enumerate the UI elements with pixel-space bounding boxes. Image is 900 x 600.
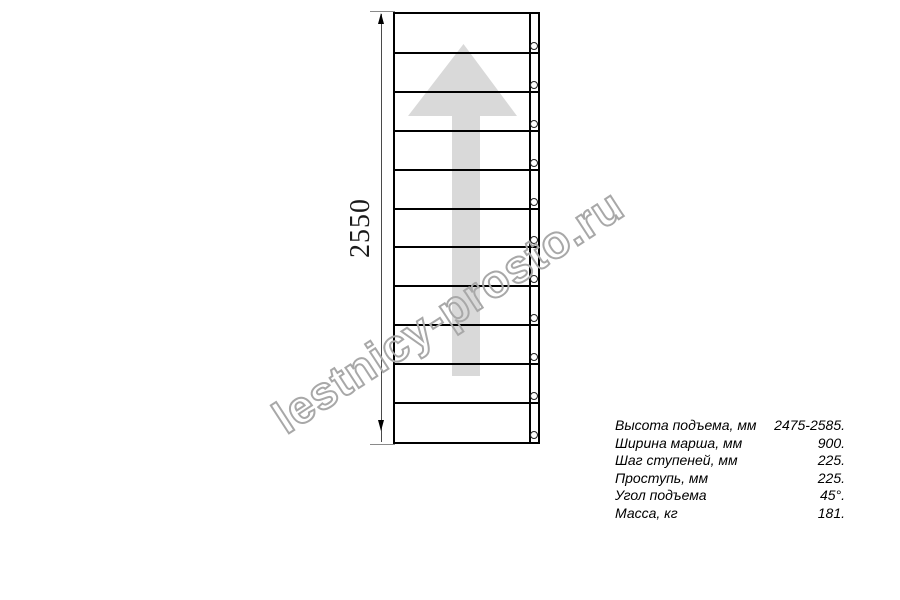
dimension-arrowhead-up-icon: [378, 13, 384, 24]
step-line: [395, 52, 538, 54]
stringer-line: [529, 14, 531, 442]
bolt-icon: [530, 42, 538, 50]
spec-value: 225.: [818, 452, 845, 470]
up-direction-arrow-icon: [395, 14, 538, 442]
dimension-label: 2550: [345, 198, 377, 258]
step-line: [395, 402, 538, 404]
spec-label: Проступь, мм: [615, 470, 708, 488]
spec-label: Высота подъема, мм: [615, 417, 757, 435]
bolt-icon: [530, 314, 538, 322]
dimension-arrowhead-down-icon: [378, 420, 384, 431]
bolt-icon: [530, 120, 538, 128]
spec-row: Проступь, мм225.: [615, 470, 845, 488]
spec-row: Высота подъема, мм2475-2585.: [615, 417, 845, 435]
dimension-extension-line-top: [370, 11, 395, 12]
spec-row: Ширина марша, мм900.: [615, 435, 845, 453]
spec-value: 225.: [818, 470, 845, 488]
step-line: [395, 363, 538, 365]
step-line: [395, 285, 538, 287]
bolt-icon: [530, 275, 538, 283]
bolt-icon: [530, 236, 538, 244]
bolt-icon: [530, 198, 538, 206]
spec-value: 45°.: [820, 487, 845, 505]
bolt-icon: [530, 81, 538, 89]
bolt-icon: [530, 392, 538, 400]
dimension-extension-line-bottom: [370, 444, 395, 445]
spec-label: Ширина марша, мм: [615, 435, 742, 453]
bolt-icon: [530, 431, 538, 439]
staircase-plan: [393, 12, 540, 444]
spec-value: 181.: [818, 505, 845, 523]
spec-value: 900.: [818, 435, 845, 453]
spec-label: Масса, кг: [615, 505, 678, 523]
dimension-line: [381, 14, 382, 442]
spec-table: Высота подъема, мм2475-2585.Ширина марша…: [615, 417, 845, 522]
step-line: [395, 208, 538, 210]
step-line: [395, 130, 538, 132]
spec-row: Масса, кг181.: [615, 505, 845, 523]
technical-drawing-page: { "drawing": { "type": "staircase-plan-t…: [0, 0, 900, 600]
step-line: [395, 91, 538, 93]
spec-label: Угол подъема: [615, 487, 707, 505]
bolt-icon: [530, 159, 538, 167]
step-line: [395, 246, 538, 248]
bolt-icon: [530, 353, 538, 361]
spec-label: Шаг ступеней, мм: [615, 452, 738, 470]
spec-row: Шаг ступеней, мм225.: [615, 452, 845, 470]
step-line: [395, 324, 538, 326]
spec-value: 2475-2585.: [774, 417, 845, 435]
spec-row: Угол подъема45°.: [615, 487, 845, 505]
step-line: [395, 169, 538, 171]
